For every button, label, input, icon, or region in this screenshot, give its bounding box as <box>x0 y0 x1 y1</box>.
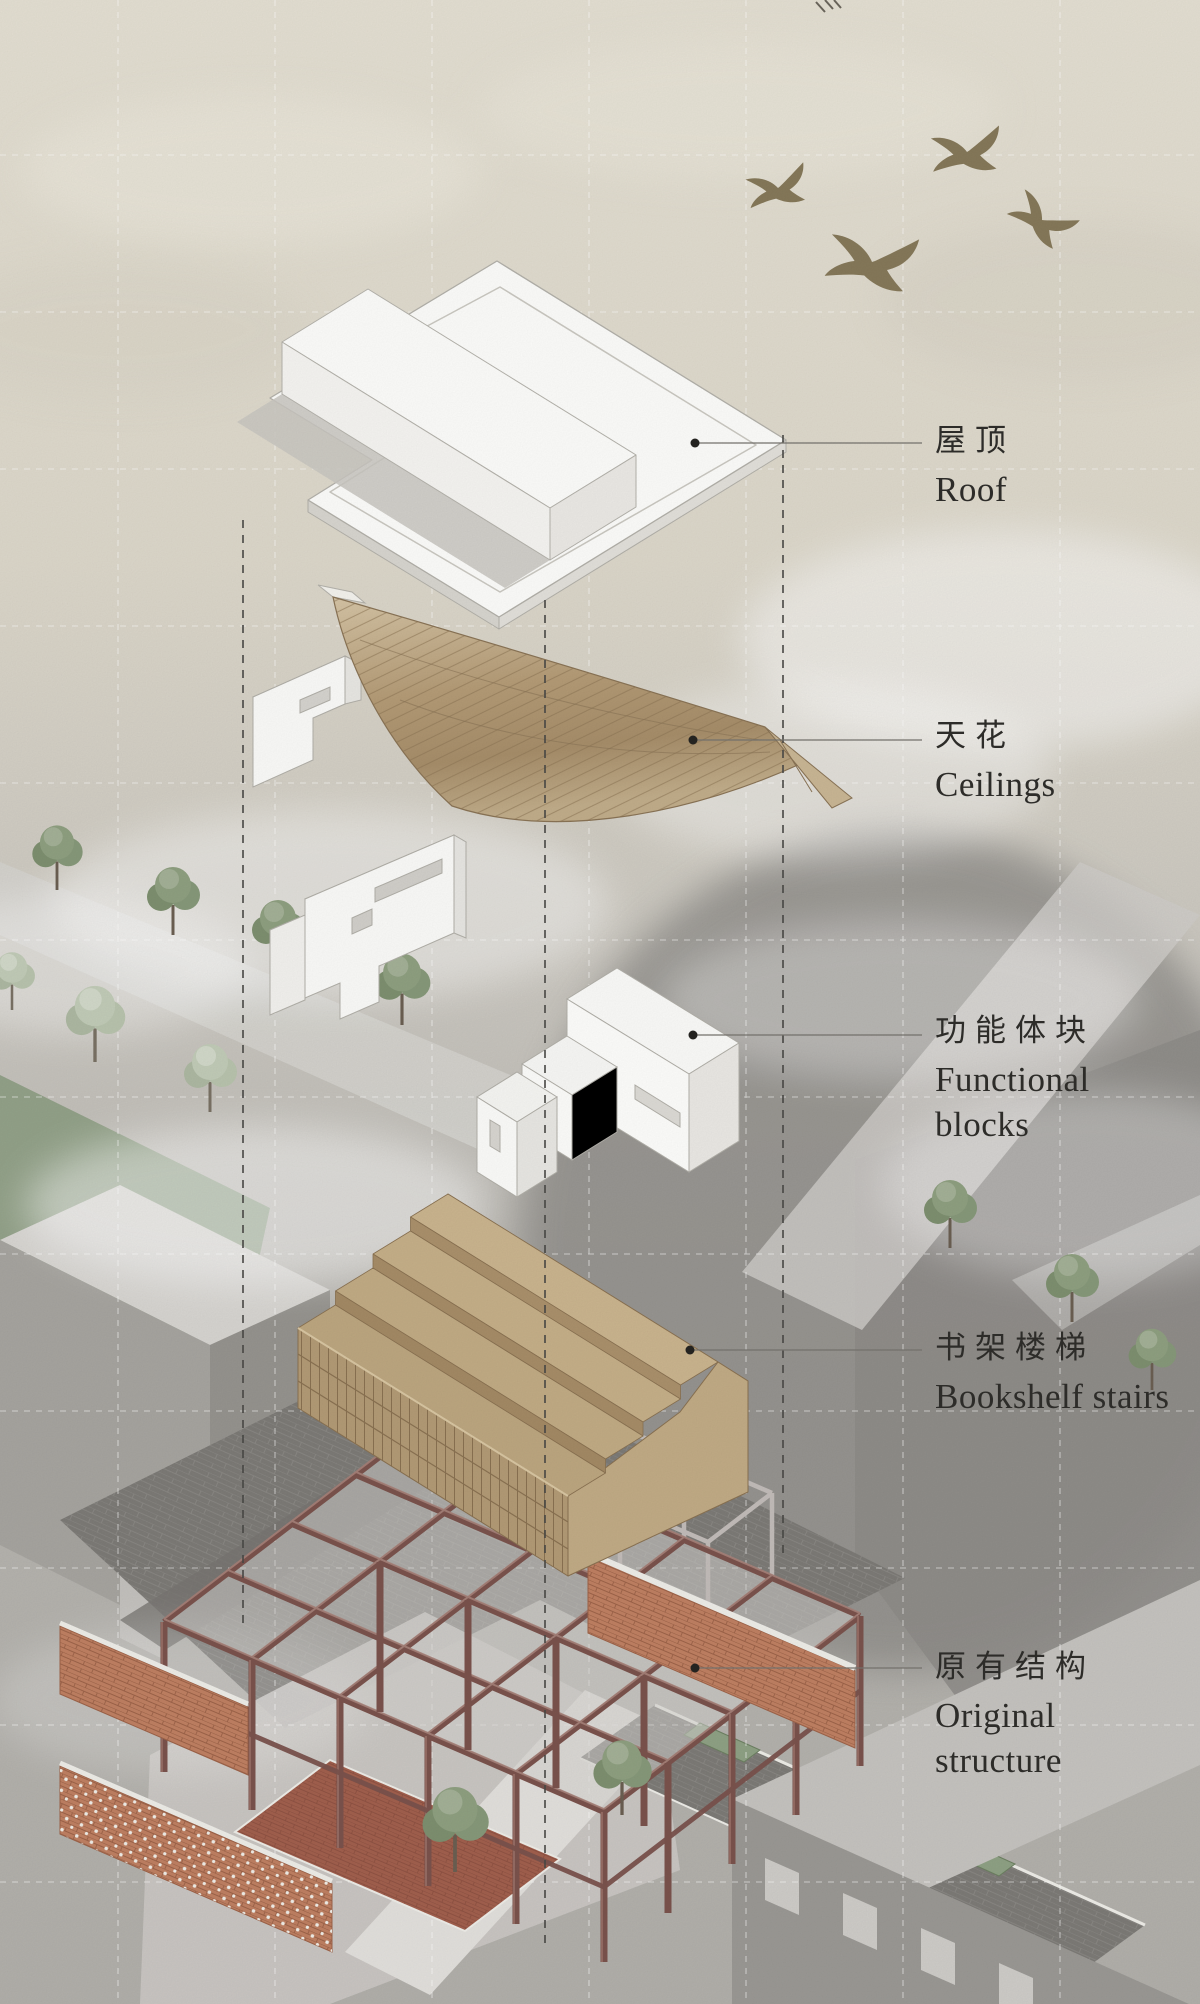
label-roof: 屋顶 Roof <box>935 415 1191 512</box>
label-blocks-zh: 功能体块 <box>935 1005 1191 1050</box>
label-original-structure: 原有结构 Original structure <box>935 1641 1191 1783</box>
label-ceilings-zh: 天花 <box>935 710 1191 755</box>
label-roof-zh: 屋顶 <box>935 415 1191 460</box>
label-structure-en: Original structure <box>935 1693 1191 1783</box>
exploded-axon-diagram: 屋顶 Roof 天花 Ceilings 功能体块 Functional bloc… <box>0 0 1200 2004</box>
label-stairs-en: Bookshelf stairs <box>935 1374 1191 1419</box>
label-bookshelf-stairs: 书架楼梯 Bookshelf stairs <box>935 1322 1191 1419</box>
label-roof-en: Roof <box>935 467 1191 512</box>
label-ceilings-en: Ceilings <box>935 762 1191 807</box>
label-structure-zh: 原有结构 <box>935 1641 1191 1686</box>
label-stairs-zh: 书架楼梯 <box>935 1322 1191 1367</box>
label-functional-blocks: 功能体块 Functional blocks <box>935 1005 1191 1147</box>
label-ceilings: 天花 Ceilings <box>935 710 1191 807</box>
label-blocks-en: Functional blocks <box>935 1057 1191 1147</box>
